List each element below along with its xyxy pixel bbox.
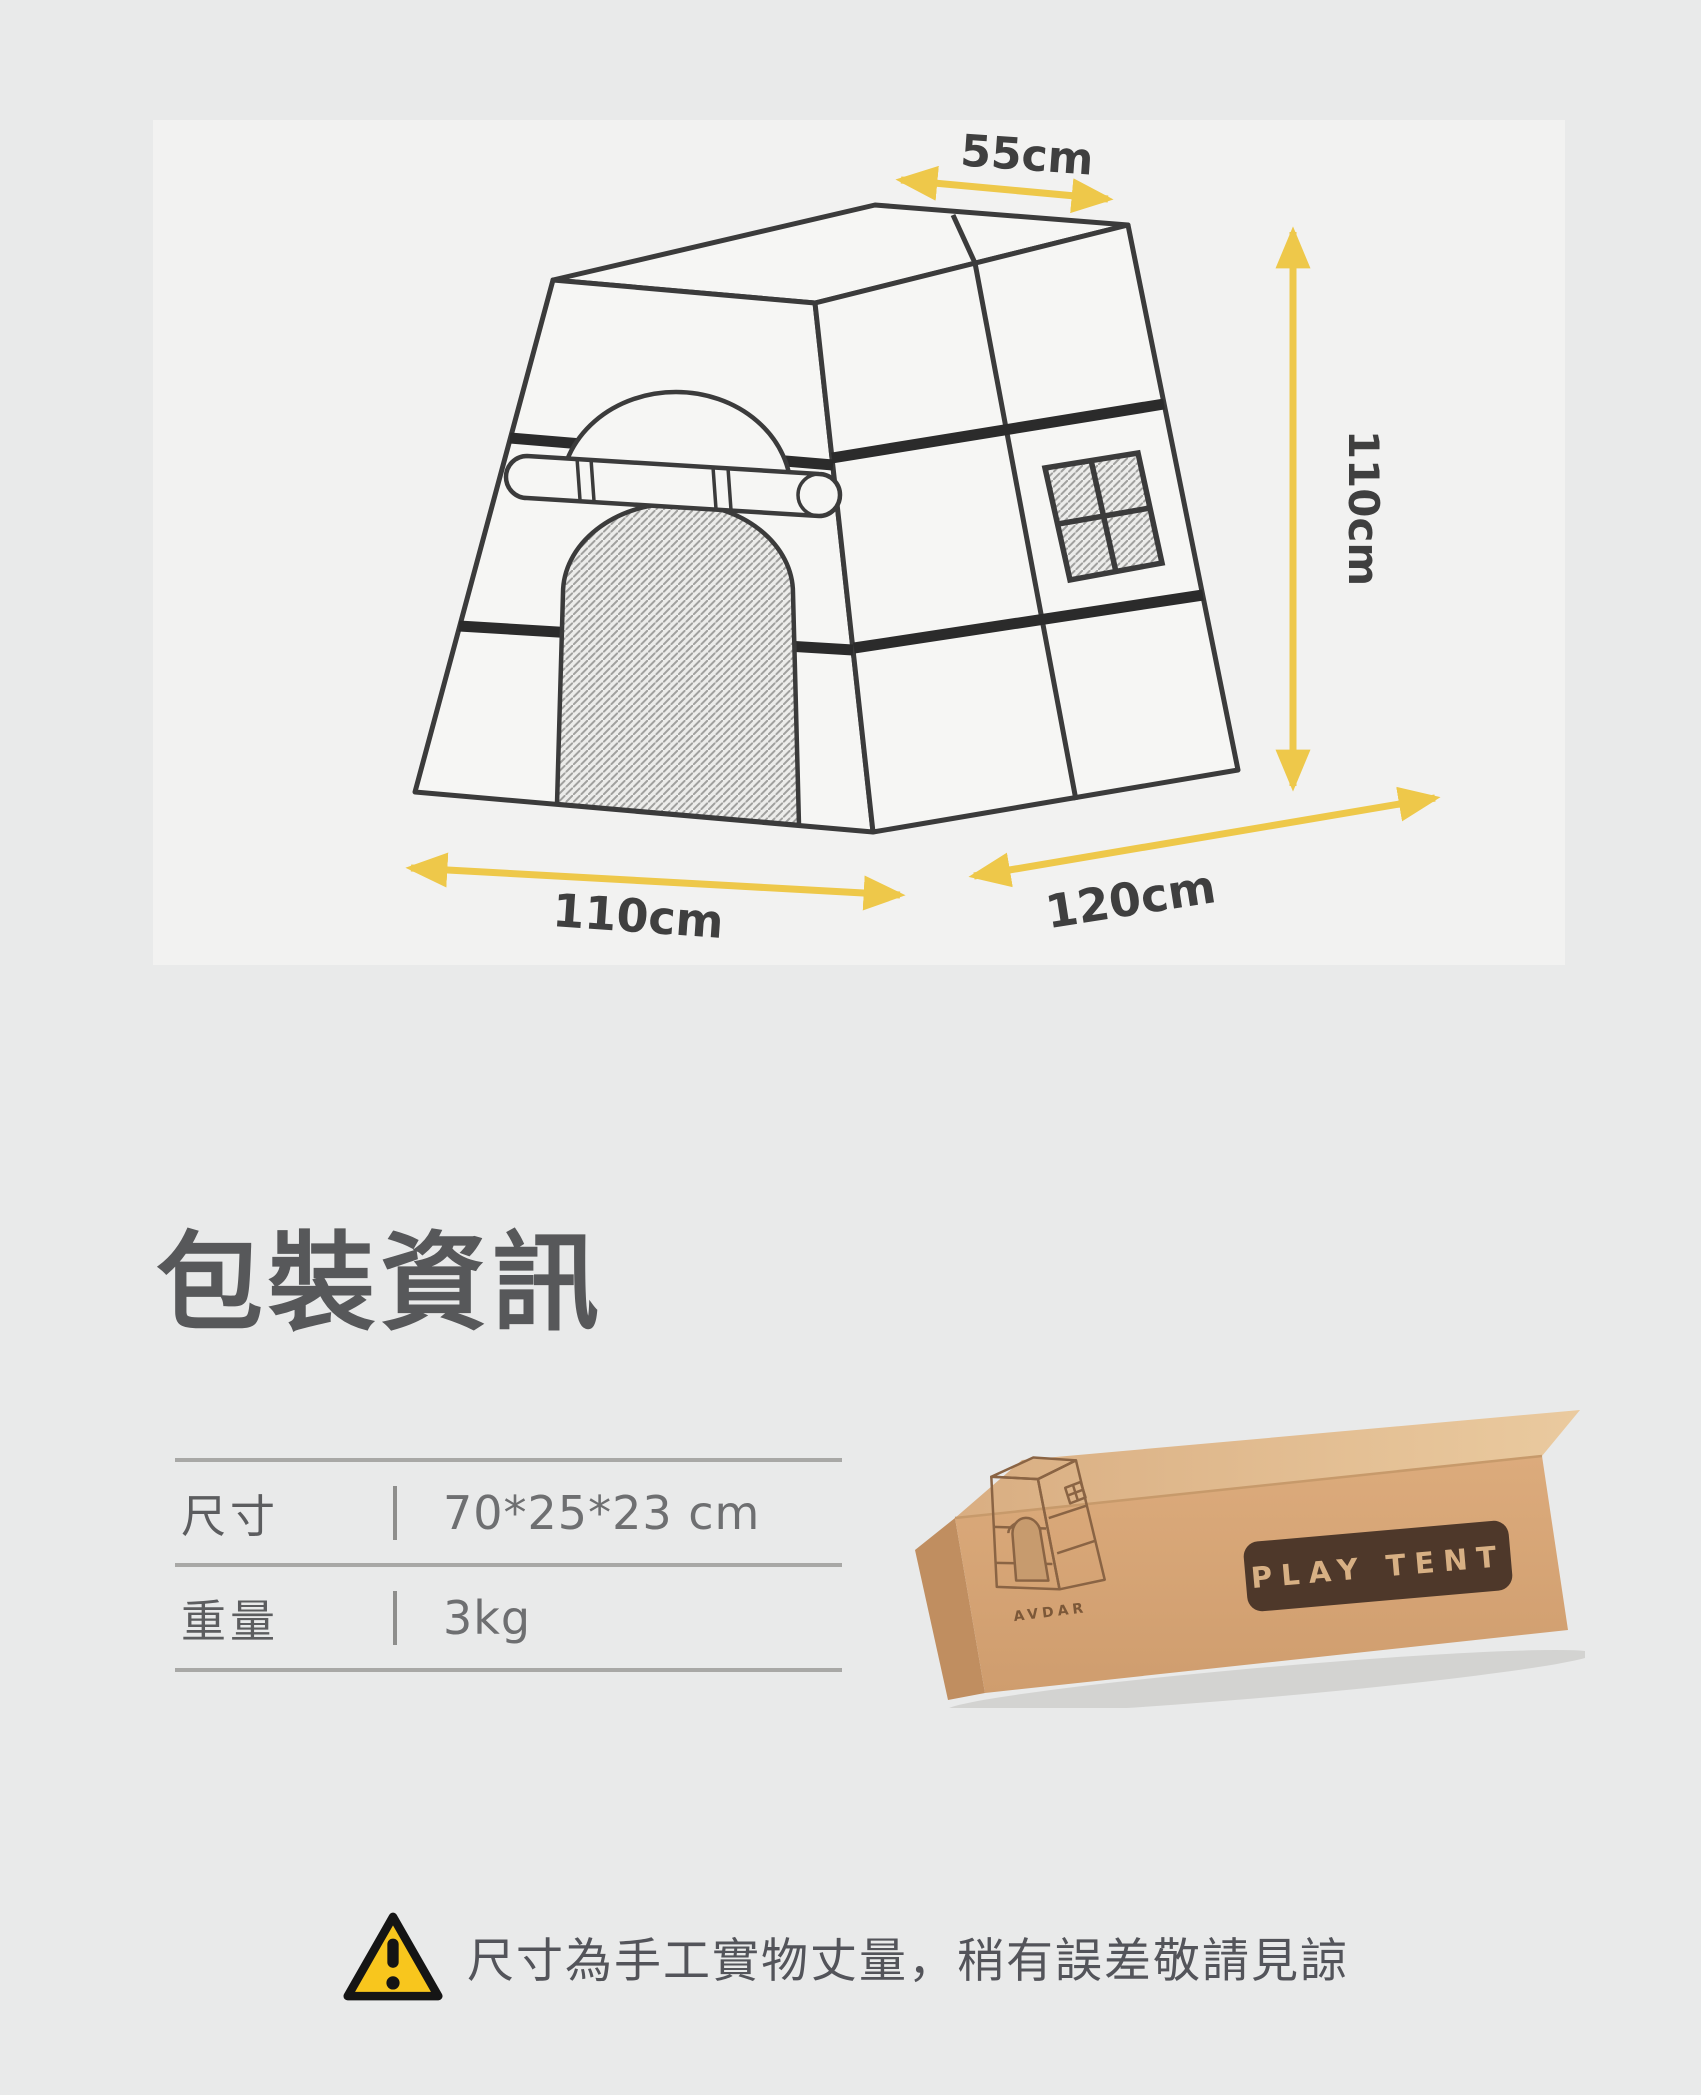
spec-label-size: 尺寸 (175, 1480, 393, 1545)
spec-divider (393, 1486, 397, 1540)
packaging-spec-table: 尺寸 70*25*23 cm 重量 3kg (175, 1458, 842, 1672)
spec-value-weight: 3kg (443, 1591, 531, 1645)
spec-row-size: 尺寸 70*25*23 cm (175, 1462, 842, 1567)
dim-top-width-label: 55cm (959, 125, 1095, 185)
spec-value-size: 70*25*23 cm (443, 1486, 760, 1540)
dim-height-label: 110cm (1339, 430, 1388, 586)
dim-depth-label: 120cm (1042, 859, 1220, 939)
spec-divider (393, 1591, 397, 1645)
tent-dimension-diagram: 55cm 110cm 110cm 120cm (153, 120, 1565, 965)
measurement-notice: 尺寸為手工實物丈量，稍有誤差敬請見諒 (343, 1908, 1349, 2005)
spec-label-weight: 重量 (175, 1585, 393, 1650)
spec-row-weight: 重量 3kg (175, 1567, 842, 1672)
packaging-box-photo: AVDAR PLAY TENT (890, 1398, 1585, 1708)
dim-front-width-label: 110cm (551, 883, 726, 949)
packaging-heading: 包裝資訊 (156, 1196, 604, 1351)
product-page: 55cm 110cm 110cm 120cm 包裝資訊 尺寸 70*25*23 … (0, 0, 1701, 2095)
carton-box-image: AVDAR PLAY TENT (890, 1398, 1585, 1708)
dimension-diagram-panel: 55cm 110cm 110cm 120cm (153, 120, 1565, 965)
notice-text: 尺寸為手工實物丈量，稍有誤差敬請見諒 (467, 1922, 1349, 1991)
tent-door (557, 503, 799, 825)
warning-icon (343, 1908, 443, 2005)
